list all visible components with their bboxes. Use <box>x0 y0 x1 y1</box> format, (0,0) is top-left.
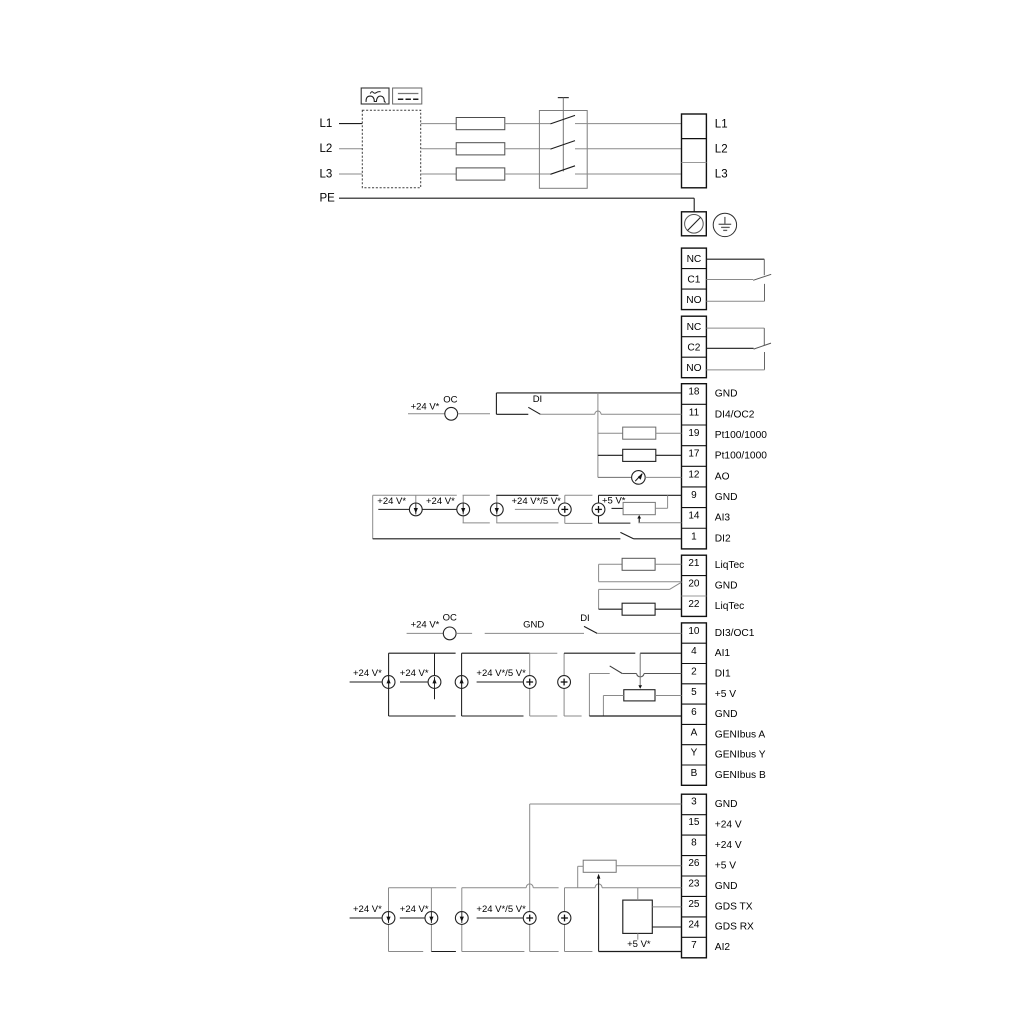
svg-text:L1: L1 <box>715 118 728 130</box>
svg-text:+24 V*: +24 V* <box>353 668 382 679</box>
svg-text:GENIbus A: GENIbus A <box>715 729 766 740</box>
svg-text:OC: OC <box>443 613 457 624</box>
svg-text:+24 V*: +24 V* <box>400 904 429 915</box>
svg-text:L3: L3 <box>320 168 333 180</box>
svg-text:+24 V*/5 V*: +24 V*/5 V* <box>476 904 526 915</box>
svg-text:Y: Y <box>691 748 698 759</box>
svg-text:12: 12 <box>688 469 700 480</box>
svg-text:+5 V: +5 V <box>715 689 736 700</box>
svg-text:10: 10 <box>688 626 700 637</box>
svg-text:+24 V*/5 V*: +24 V*/5 V* <box>476 668 526 679</box>
svg-text:22: 22 <box>688 599 700 610</box>
svg-text:OC: OC <box>443 394 457 405</box>
svg-text:C2: C2 <box>687 343 700 354</box>
svg-text:DI3/OC1: DI3/OC1 <box>715 628 755 639</box>
svg-text:GND: GND <box>715 581 738 592</box>
svg-text:4: 4 <box>691 646 697 657</box>
svg-text:18: 18 <box>688 387 700 398</box>
svg-text:1: 1 <box>691 531 697 542</box>
svg-text:AO: AO <box>715 471 730 482</box>
svg-text:B: B <box>691 768 698 779</box>
svg-text:GND: GND <box>715 389 738 400</box>
svg-text:NO: NO <box>686 363 701 374</box>
svg-text:+5 V: +5 V <box>715 860 736 871</box>
svg-text:LiqTec: LiqTec <box>715 601 744 612</box>
svg-text:21: 21 <box>688 558 700 569</box>
svg-text:+24 V*: +24 V* <box>411 619 440 630</box>
svg-text:14: 14 <box>688 511 700 522</box>
svg-text:AI1: AI1 <box>715 648 731 659</box>
svg-text:15: 15 <box>688 817 700 828</box>
svg-text:GDS RX: GDS RX <box>715 922 754 933</box>
svg-text:+24 V*: +24 V* <box>411 401 440 412</box>
svg-text:PE: PE <box>320 193 336 205</box>
svg-text:DI1: DI1 <box>715 669 731 680</box>
svg-text:GND: GND <box>523 620 544 631</box>
svg-text:A: A <box>691 727 698 738</box>
svg-text:GND: GND <box>715 709 738 720</box>
svg-text:DI: DI <box>580 613 590 624</box>
svg-text:20: 20 <box>688 579 700 590</box>
svg-text:2: 2 <box>691 667 697 678</box>
svg-text:NC: NC <box>687 322 702 333</box>
svg-text:L2: L2 <box>715 144 728 156</box>
svg-text:GND: GND <box>715 492 738 503</box>
svg-text:+24 V*: +24 V* <box>353 904 382 915</box>
svg-text:+24 V*: +24 V* <box>400 668 429 679</box>
svg-text:+24 V: +24 V <box>715 840 742 851</box>
svg-text:11: 11 <box>689 407 700 418</box>
svg-text:DI4/OC2: DI4/OC2 <box>715 409 755 420</box>
svg-text:+24 V: +24 V <box>715 819 742 830</box>
svg-text:+24 V*: +24 V* <box>377 496 406 507</box>
svg-text:AI3: AI3 <box>715 513 731 524</box>
svg-text:3: 3 <box>691 797 697 808</box>
svg-text:AI2: AI2 <box>715 942 731 953</box>
svg-text:6: 6 <box>691 707 697 718</box>
svg-text:8: 8 <box>691 838 697 849</box>
svg-text:7: 7 <box>691 940 697 951</box>
svg-text:L2: L2 <box>320 143 333 155</box>
svg-text:Pt100/1000: Pt100/1000 <box>715 451 767 462</box>
svg-text:+24 V*: +24 V* <box>426 496 455 507</box>
svg-text:26: 26 <box>688 858 700 869</box>
svg-text:17: 17 <box>688 449 700 460</box>
svg-text:C1: C1 <box>687 275 700 286</box>
svg-text:GENIbus Y: GENIbus Y <box>715 750 766 761</box>
svg-text:GND: GND <box>715 799 738 810</box>
svg-text:9: 9 <box>691 490 697 501</box>
svg-text:19: 19 <box>688 428 700 439</box>
svg-text:L3: L3 <box>715 169 728 181</box>
svg-text:LiqTec: LiqTec <box>715 560 744 571</box>
svg-text:Pt100/1000: Pt100/1000 <box>715 430 767 441</box>
svg-text:+5 V*: +5 V* <box>627 939 651 950</box>
svg-text:DI: DI <box>533 394 543 405</box>
svg-text:25: 25 <box>688 899 700 910</box>
svg-text:NO: NO <box>686 295 701 306</box>
svg-text:5: 5 <box>691 687 697 698</box>
svg-text:+24 V*/5 V*: +24 V*/5 V* <box>512 496 562 507</box>
svg-text:GDS TX: GDS TX <box>715 901 753 912</box>
svg-text:GND: GND <box>715 881 738 892</box>
svg-text:24: 24 <box>688 919 700 930</box>
svg-text:DI2: DI2 <box>715 533 731 544</box>
svg-text:GENIbus B: GENIbus B <box>715 770 766 781</box>
svg-text:NC: NC <box>687 254 702 265</box>
svg-text:+5 V*: +5 V* <box>602 496 626 507</box>
svg-text:23: 23 <box>688 879 700 890</box>
svg-text:L1: L1 <box>320 118 333 130</box>
